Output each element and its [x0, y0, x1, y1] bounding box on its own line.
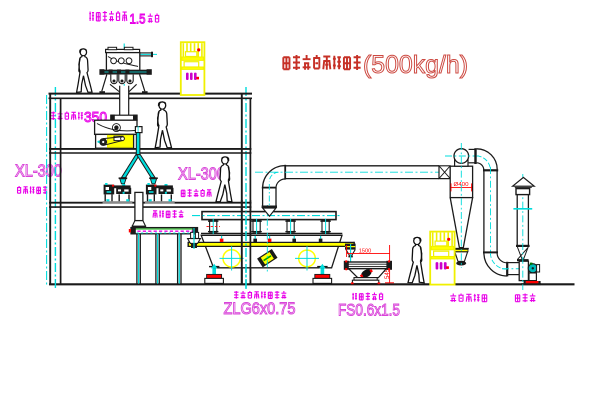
- svg-text:(500kg/h): (500kg/h): [363, 51, 468, 79]
- svg-text:1.5: 1.5: [130, 11, 146, 27]
- svg-text:ZLG6x0.75: ZLG6x0.75: [224, 299, 296, 318]
- svg-text:XL-300: XL-300: [178, 164, 225, 184]
- svg-text:FS0.6x1.5: FS0.6x1.5: [338, 301, 400, 320]
